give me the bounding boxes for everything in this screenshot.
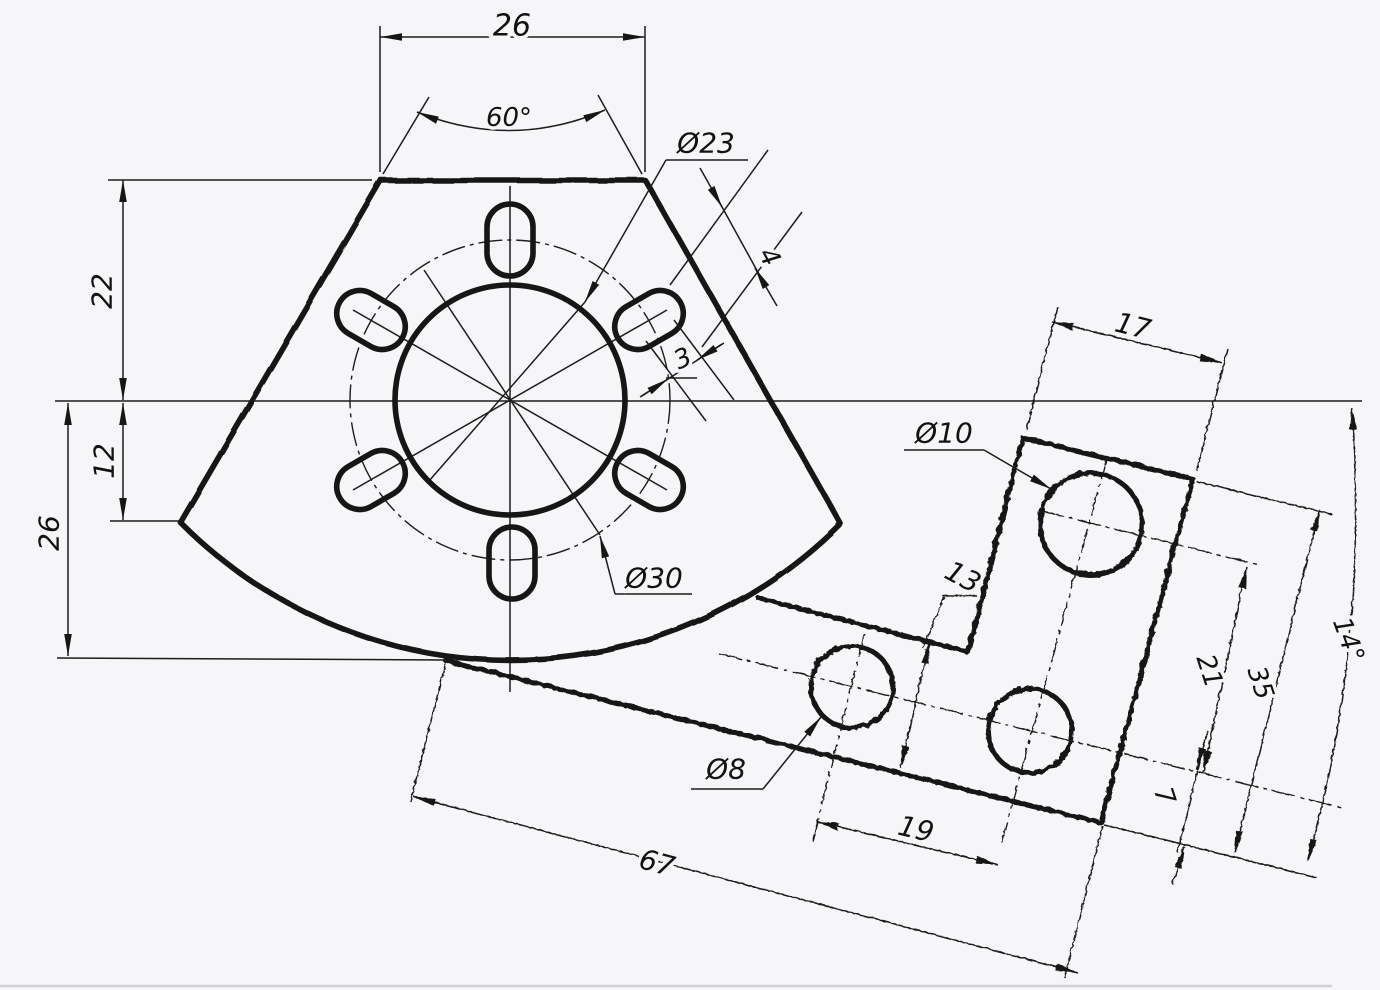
dim-arrow-seg xyxy=(642,379,668,396)
label-bolt-circle: Ø30 xyxy=(624,562,683,595)
ext-line xyxy=(598,95,642,174)
ext-line xyxy=(1103,824,1316,877)
slot-bottom xyxy=(489,527,535,599)
plate-dimensions xyxy=(410,306,1355,977)
diameter-line-hole xyxy=(429,302,585,481)
ext-line xyxy=(1026,306,1057,429)
label-incline-angle: 14° xyxy=(1326,613,1370,667)
ext-line xyxy=(702,212,802,347)
label-small-hole: Ø8 xyxy=(705,753,746,786)
plate-leaders xyxy=(691,450,1051,789)
large-hole-cross-axis xyxy=(1040,510,1257,564)
label-central-hole: Ø23 xyxy=(676,127,735,160)
label-overall-length: 67 xyxy=(636,842,679,883)
dim-arrow-seg xyxy=(697,344,722,360)
dim-overall-length xyxy=(413,796,1077,972)
left-hole-cross-axis xyxy=(812,633,864,841)
label-head-length: 35 xyxy=(1241,663,1280,704)
dim-arrow-seg xyxy=(1172,846,1184,884)
label-slot-length: 4 xyxy=(752,243,786,272)
ext-line xyxy=(1196,481,1332,514)
label-top-width: 26 xyxy=(493,9,531,44)
drawing-sheet: 26 60° Ø23 4 3 22 12 26 Ø30 Ø10 Ø8 13 17… xyxy=(0,0,1380,990)
label-hole-pitch: 19 xyxy=(895,809,937,849)
ext-line xyxy=(410,663,445,801)
fan-dimensions xyxy=(57,26,802,660)
engineering-drawing-canvas: 26 60° Ø23 4 3 22 12 26 Ø30 Ø10 Ø8 13 17… xyxy=(0,0,1380,990)
label-apex-angle: 60° xyxy=(486,103,532,133)
ext-line xyxy=(1196,348,1227,470)
ext-line xyxy=(1064,825,1102,977)
plate-part xyxy=(445,437,1192,822)
dim-arrow-seg xyxy=(700,168,722,207)
label-large-hole: Ø10 xyxy=(914,417,973,450)
label-height-above-axis: 22 xyxy=(86,273,119,309)
plate-outline xyxy=(445,437,1192,822)
label-slot-width: 3 xyxy=(669,342,697,376)
leader-bolt-circle xyxy=(600,536,615,594)
ext-line xyxy=(57,658,446,660)
label-head-width: 17 xyxy=(1112,306,1155,347)
ext-line xyxy=(383,97,429,174)
label-vertex-drop: 12 xyxy=(88,443,121,479)
dim-slot-length xyxy=(716,196,760,276)
label-axis-to-bottom: 7 xyxy=(1147,783,1181,808)
dim-arrow-seg xyxy=(755,268,777,306)
dimension-labels: 26 60° Ø23 4 3 22 12 26 Ø30 Ø10 Ø8 13 17… xyxy=(33,9,1370,884)
label-axis-to-hole-top: 21 xyxy=(1190,651,1229,692)
label-depth-below-axis: 26 xyxy=(33,515,66,551)
